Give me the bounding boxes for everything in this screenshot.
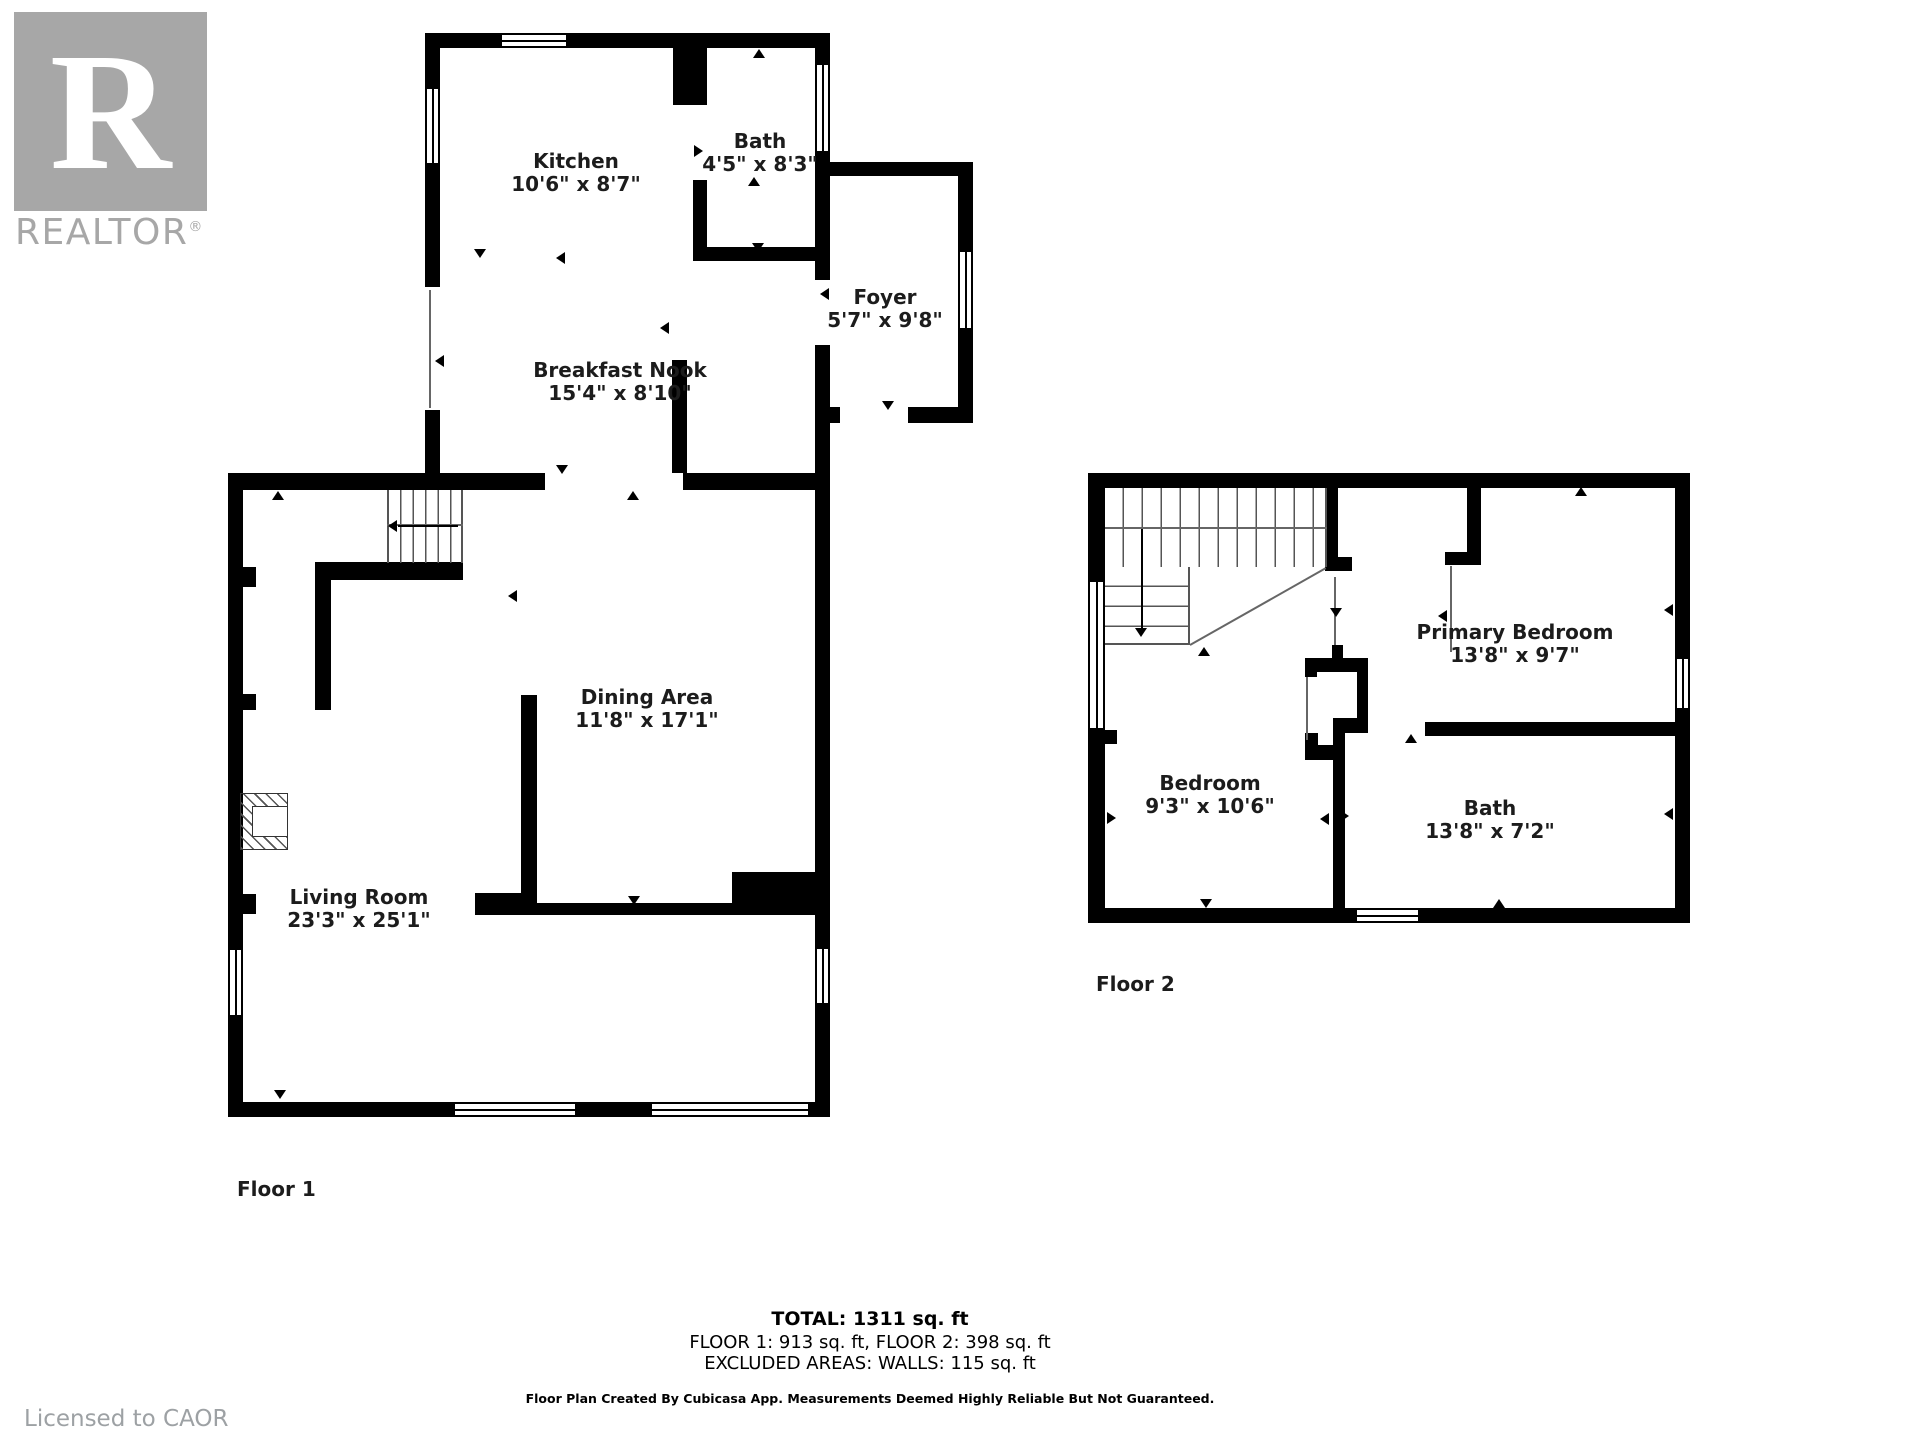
stair-diagonal-line [1190, 567, 1327, 646]
room-name: Breakfast Nook [533, 359, 707, 382]
wall-segment [228, 473, 545, 490]
registered-mark: ® [188, 219, 204, 235]
door-swing-marker [556, 465, 568, 474]
door-swing-marker [1330, 608, 1342, 617]
room-name: Bath [702, 130, 818, 153]
wall-jamb [1305, 658, 1317, 677]
wall-jamb [243, 567, 256, 587]
floor-areas-text: FLOOR 1: 913 sq. ft, FLOOR 2: 398 sq. ft [470, 1332, 1270, 1353]
door-swing-marker [1320, 813, 1329, 825]
room-dims: 5'7" x 9'8" [827, 309, 943, 332]
wall-segment [315, 580, 331, 710]
wall-segment [568, 33, 830, 48]
room-dims: 11'8" x 17'1" [575, 709, 718, 732]
wall-segment [425, 48, 440, 87]
door-swing-marker [435, 355, 444, 367]
realtor-logo-icon: R [14, 12, 207, 211]
wall-segment [1420, 908, 1690, 923]
window [1355, 908, 1420, 923]
door-swing-marker [628, 896, 640, 905]
door-swing-marker [556, 252, 565, 264]
stair-arrow-line [398, 525, 458, 527]
door-swing-marker [753, 49, 765, 58]
wall-segment [315, 562, 463, 580]
fireplace [240, 793, 288, 850]
wall-jamb [1105, 730, 1117, 744]
window [958, 250, 973, 330]
total-area-text: TOTAL: 1311 sq. ft [470, 1308, 1270, 1330]
room-name: Kitchen [511, 150, 641, 173]
door-swing-marker [752, 243, 764, 252]
wall-segment [830, 407, 840, 423]
wall-segment [228, 1102, 453, 1117]
chimney-mass [732, 872, 818, 915]
wall-segment [810, 1102, 830, 1117]
stair-arrow-head [1135, 628, 1147, 637]
door-swing-marker [1664, 604, 1673, 616]
room-label-bedroom: Bedroom 9'3" x 10'6" [1145, 772, 1275, 818]
wall-segment [1333, 750, 1345, 908]
wall-opening-line [429, 290, 431, 408]
room-dims: 13'8" x 7'2" [1425, 820, 1555, 843]
wall-segment [425, 33, 500, 48]
wall-segment [577, 1102, 650, 1117]
room-label-bath2: Bath 13'8" x 7'2" [1425, 797, 1555, 843]
room-label-kitchen: Kitchen 10'6" x 8'7" [511, 150, 641, 196]
closet-door-line [1306, 677, 1308, 740]
wall-jamb [1445, 552, 1481, 565]
room-dims: 9'3" x 10'6" [1145, 795, 1275, 818]
window [1675, 657, 1690, 710]
wall-segment [1675, 710, 1690, 908]
wall-segment [1088, 908, 1355, 923]
wall-segment [683, 473, 815, 490]
realtor-brand-word: REALTOR [15, 212, 188, 253]
window [815, 947, 830, 1005]
room-dims: 23'3" x 25'1" [287, 909, 430, 932]
room-label-breakfast-nook: Breakfast Nook 15'4" x 8'10" [533, 359, 707, 405]
room-label-living-room: Living Room 23'3" x 25'1" [287, 886, 430, 932]
door-swing-marker [1493, 899, 1505, 908]
wall-segment [1675, 488, 1690, 657]
window [453, 1102, 577, 1117]
room-dims: 10'6" x 8'7" [511, 173, 641, 196]
room-name: Bedroom [1145, 772, 1275, 795]
wall-segment [673, 48, 707, 105]
room-name: Living Room [287, 886, 430, 909]
wall-segment [830, 162, 973, 176]
realtor-logo-letter: R [50, 28, 171, 196]
fireplace-firebox [252, 806, 288, 837]
room-name: Primary Bedroom [1417, 621, 1614, 644]
room-label-primary-bedroom: Primary Bedroom 13'8" x 9'7" [1417, 621, 1614, 667]
excluded-areas-text: EXCLUDED AREAS: WALLS: 115 sq. ft [470, 1353, 1270, 1374]
room-dims: 13'8" x 9'7" [1417, 644, 1614, 667]
room-dims: 15'4" x 8'10" [533, 382, 707, 405]
door-swing-marker [1198, 647, 1210, 656]
wall-segment [958, 176, 973, 250]
wall-segment [815, 345, 830, 473]
room-name: Foyer [827, 286, 943, 309]
wall-segment [475, 893, 537, 915]
room-name: Bath [1425, 797, 1555, 820]
wall-segment [1357, 658, 1368, 723]
door-swing-marker [1107, 812, 1116, 824]
stair-arrow-line [1141, 529, 1143, 629]
wall-jamb [1325, 557, 1352, 571]
room-label-dining-area: Dining Area 11'8" x 17'1" [575, 686, 718, 732]
window [228, 948, 243, 1017]
wall-segment [908, 407, 973, 423]
door-swing-marker [274, 1090, 286, 1099]
wall-segment [521, 695, 537, 893]
wall-segment [1088, 488, 1105, 580]
door-swing-marker [1340, 810, 1349, 822]
door-swing-marker [748, 177, 760, 186]
door-swing-marker [508, 590, 517, 602]
window [425, 87, 440, 165]
door-swing-marker [1405, 734, 1417, 743]
window [500, 33, 568, 48]
wall-segment [1088, 730, 1105, 923]
wall-segment [815, 48, 830, 63]
room-dims: 4'5" x 8'3" [702, 153, 818, 176]
disclaimer-text: Floor Plan Created By Cubicasa App. Meas… [470, 1391, 1270, 1406]
window [1088, 580, 1105, 730]
room-label-bath1: Bath 4'5" x 8'3" [702, 130, 818, 176]
staircase-lower-run [1105, 567, 1190, 645]
wall-jamb [243, 694, 256, 710]
realtor-brand-text: REALTOR® [15, 212, 204, 253]
door-swing-marker [660, 322, 669, 334]
wall-segment [425, 165, 440, 287]
stair-walkline [1105, 527, 1327, 529]
door-swing-marker [1200, 899, 1212, 908]
door-swing-marker [882, 401, 894, 410]
floor1-label: Floor 1 [237, 1177, 316, 1201]
wall-segment [1425, 722, 1675, 736]
wall-segment [228, 490, 243, 948]
door-swing-marker [1575, 487, 1587, 496]
wall-segment [425, 410, 440, 473]
room-name: Dining Area [575, 686, 718, 709]
wall-segment [815, 1005, 830, 1117]
floor2-label: Floor 2 [1096, 972, 1175, 996]
window [650, 1102, 810, 1117]
wall-segment [1088, 473, 1690, 488]
stair-arrow-head [388, 520, 397, 532]
room-label-foyer: Foyer 5'7" x 9'8" [827, 286, 943, 332]
floor-plan-page: R REALTOR® [0, 0, 1920, 1440]
wall-jamb [243, 894, 256, 914]
door-swing-marker [1664, 808, 1673, 820]
door-swing-marker [474, 249, 486, 258]
door-swing-marker [627, 491, 639, 500]
license-text: Licensed to CAOR [24, 1406, 229, 1432]
door-swing-marker [272, 491, 284, 500]
